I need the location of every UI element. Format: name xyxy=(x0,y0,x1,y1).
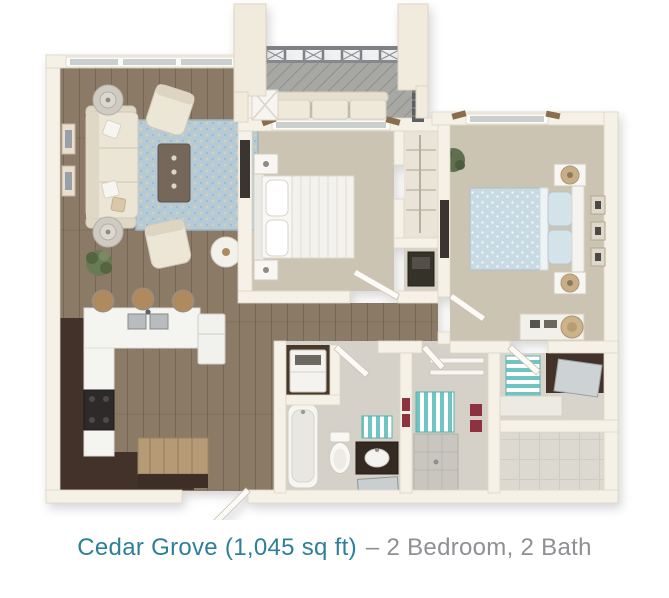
wall-bath-corridor-b xyxy=(450,341,510,353)
wall-closet1-divider xyxy=(394,238,444,248)
wall-exterior-left xyxy=(46,55,60,503)
storage-bench xyxy=(520,314,584,340)
bar-stool xyxy=(132,288,154,310)
shower-curtain-striped xyxy=(416,392,454,432)
vanity xyxy=(356,442,398,474)
bistro-table xyxy=(211,237,241,267)
lamp xyxy=(263,161,269,167)
wall-closet1-top xyxy=(394,131,404,165)
living-room-window xyxy=(66,57,236,67)
walk-in-closet-floor xyxy=(500,432,604,491)
pillow xyxy=(548,192,572,226)
mirror xyxy=(554,359,602,397)
bathtub xyxy=(288,404,318,488)
pillow xyxy=(266,180,288,216)
side-table-lamp xyxy=(93,217,123,247)
wall-bath2-vanity xyxy=(488,353,500,493)
side-table-lamp xyxy=(93,85,123,115)
wall-bedroom1-bottom-stub xyxy=(398,291,438,303)
tv-master xyxy=(440,200,449,258)
vanity-counter xyxy=(500,396,562,416)
stove xyxy=(84,390,114,430)
toilet xyxy=(330,432,351,474)
wall-bedroom1-bottom xyxy=(238,291,350,303)
wall-vanity-closet2 xyxy=(500,420,618,432)
balcony-wall-right xyxy=(416,86,428,118)
wall-art-master xyxy=(591,196,605,266)
balcony-pillar-right xyxy=(398,4,428,90)
wall-bath-corridor-a xyxy=(378,341,422,353)
bar-stool xyxy=(92,290,114,312)
lamp xyxy=(263,267,269,273)
wall-bath-corridor-c xyxy=(548,341,618,353)
potted-plant xyxy=(86,250,112,276)
red-towel xyxy=(402,398,410,411)
refrigerator xyxy=(198,314,225,364)
cabinet-base xyxy=(138,474,208,488)
duvet-patterned xyxy=(470,188,548,270)
wall-exterior-bottom-right xyxy=(248,490,618,503)
sofa xyxy=(86,106,138,228)
sheet-fold xyxy=(540,188,548,270)
towel-shelf xyxy=(430,370,484,375)
red-towel xyxy=(470,420,482,432)
wall-bathroom1-west xyxy=(274,341,286,493)
plan-specs: – 2 Bedroom, 2 Bath xyxy=(366,534,592,562)
wall-master-door-stub xyxy=(438,332,450,344)
drain xyxy=(434,460,439,465)
pillow xyxy=(548,230,572,264)
shower-pan xyxy=(414,434,458,490)
plan-name-and-size: Cedar Grove (1,045 sq ft) xyxy=(77,534,357,562)
wall-laundry-south xyxy=(286,395,340,405)
floor-plan-canvas xyxy=(0,0,669,520)
butcher-block-counter xyxy=(138,438,208,488)
wall-exterior-bottom-left xyxy=(46,490,182,503)
wall-exterior-right xyxy=(604,112,618,503)
headboard xyxy=(572,186,584,272)
washer-dryer xyxy=(290,350,326,392)
tv-living-room xyxy=(240,140,250,198)
balcony-pillar-left xyxy=(234,4,266,96)
plan-caption: Cedar Grove (1,045 sq ft) – 2 Bedroom, 2… xyxy=(0,520,669,598)
armchair xyxy=(144,218,192,269)
balcony-wall-left xyxy=(234,92,248,122)
floor-plan-figure xyxy=(0,0,669,520)
tub-faucet xyxy=(301,410,305,414)
utility-appliance xyxy=(408,252,434,286)
throw-pillow xyxy=(101,180,119,198)
red-towel xyxy=(470,404,482,416)
bar-stool xyxy=(172,290,194,312)
red-towel xyxy=(402,414,410,427)
bed-queen-white xyxy=(254,174,354,260)
throw-pillow xyxy=(111,197,126,212)
candle xyxy=(171,169,176,174)
outdoor-sofa xyxy=(272,92,388,119)
candle xyxy=(171,183,176,188)
bath-mat-teal xyxy=(362,416,392,438)
candle xyxy=(171,155,176,160)
pillow xyxy=(266,220,288,256)
